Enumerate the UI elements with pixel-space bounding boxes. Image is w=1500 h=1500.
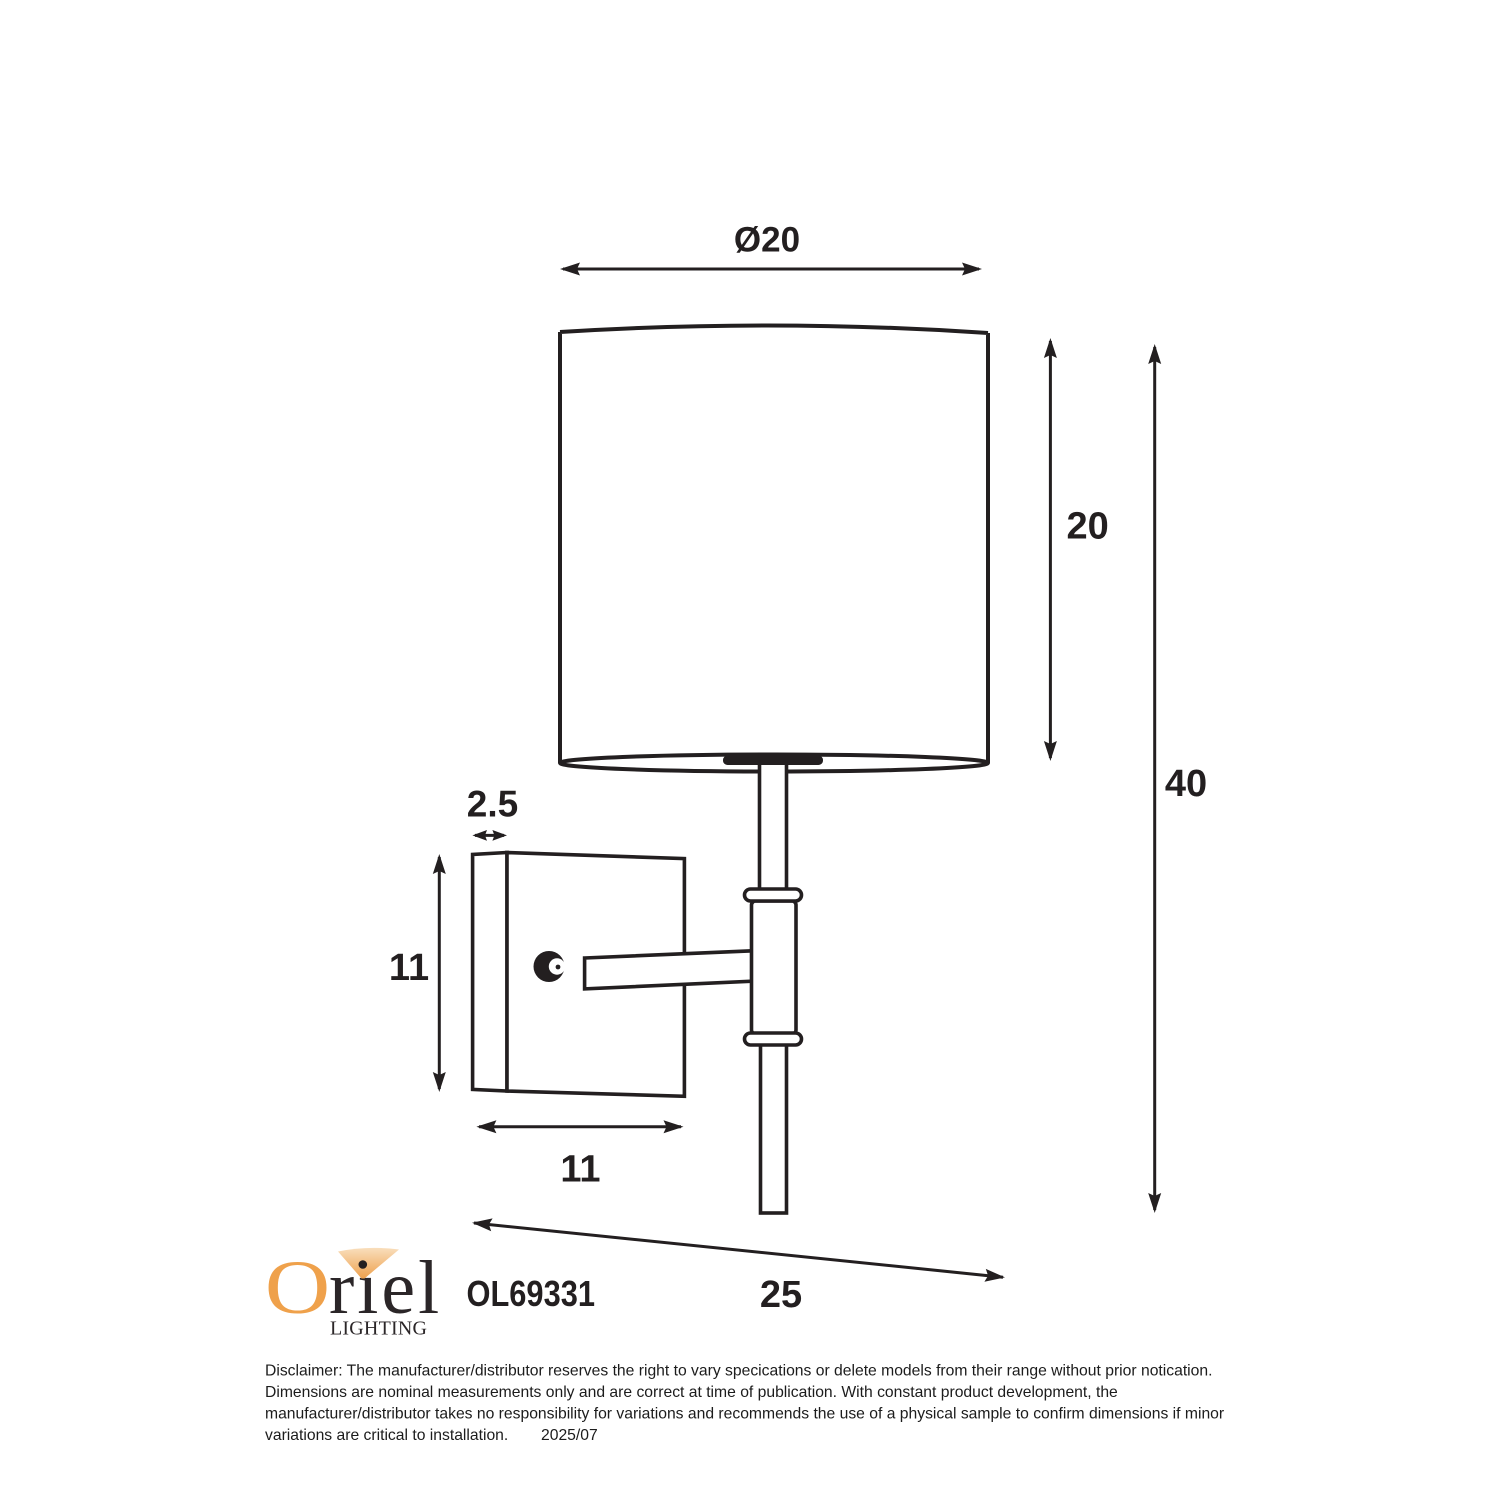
svg-text:40: 40: [1165, 763, 1207, 805]
svg-text:25: 25: [760, 1274, 802, 1316]
svg-text:Disclaimer: The manufacturer/d: Disclaimer: The manufacturer/distributor…: [265, 1363, 1212, 1380]
svg-text:20: 20: [1067, 506, 1109, 548]
svg-text:variations are critical to ins: variations are critical to installation.: [265, 1427, 508, 1444]
svg-text:2025/07: 2025/07: [541, 1427, 598, 1444]
svg-text:LIGHTING: LIGHTING: [330, 1318, 427, 1340]
svg-text:O: O: [265, 1247, 330, 1331]
svg-text:Ø20: Ø20: [734, 221, 800, 260]
svg-text:Dimensions are nominal measure: Dimensions are nominal measurements only…: [265, 1384, 1118, 1401]
svg-text:11: 11: [389, 947, 429, 989]
svg-text:11: 11: [560, 1149, 600, 1191]
svg-text:2.5: 2.5: [467, 784, 518, 825]
svg-text:manufacturer/distributor takes: manufacturer/distributor takes no respon…: [265, 1405, 1224, 1422]
svg-text:OL69331: OL69331: [467, 1273, 596, 1314]
